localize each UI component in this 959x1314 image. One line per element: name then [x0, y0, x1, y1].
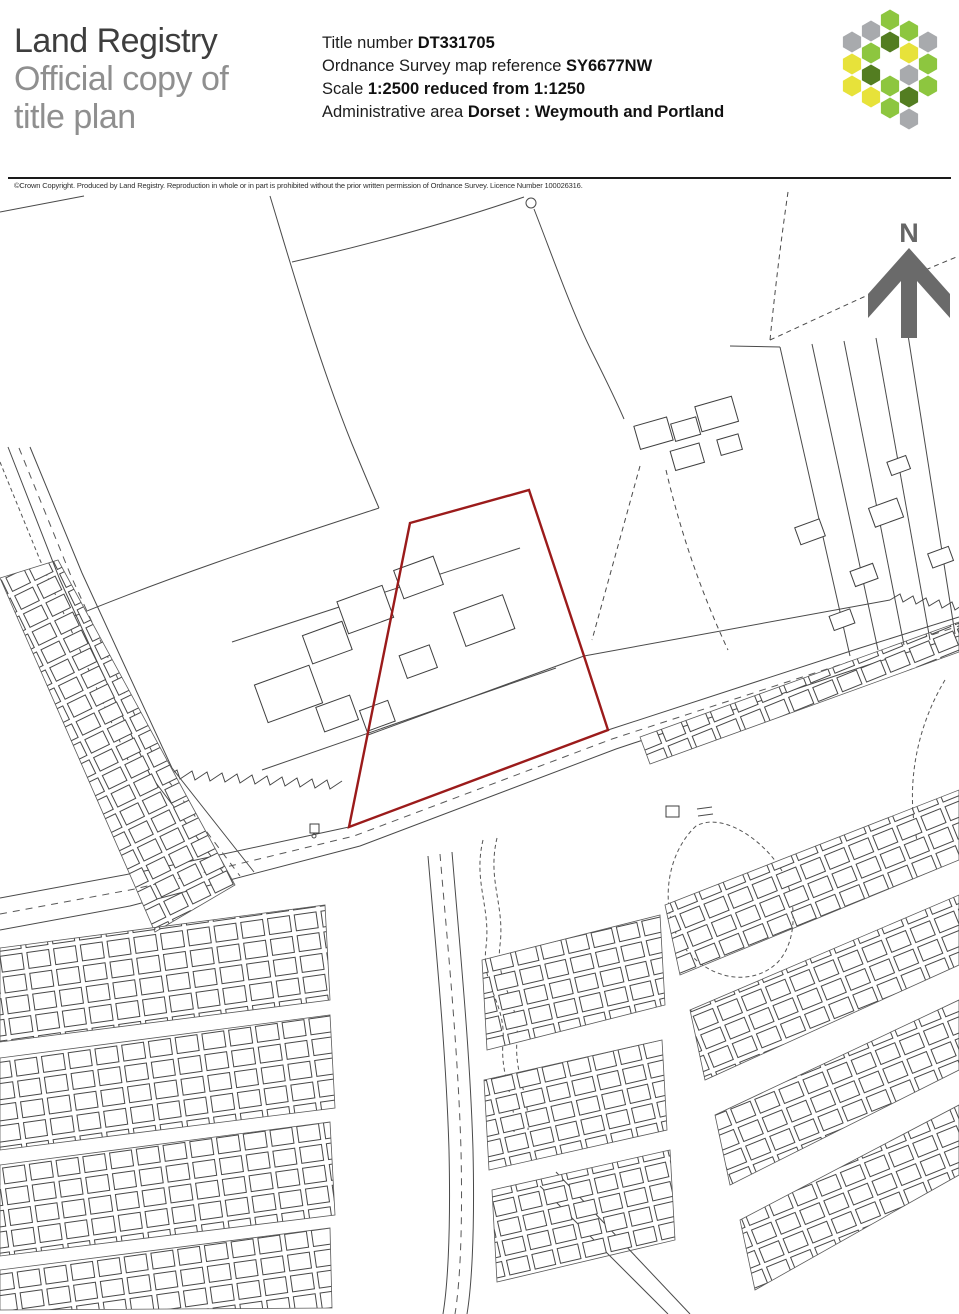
scale-label: Scale: [322, 80, 368, 98]
scale-row: Scale 1:2500 reduced from 1:1250: [322, 78, 760, 101]
header-divider: [8, 177, 951, 179]
admin-area-label: Administrative area: [322, 103, 468, 121]
brand-subtitle-line1: Official copy of: [14, 60, 228, 98]
brand-title: Land Registry: [14, 22, 228, 60]
brand-subtitle-line2: title plan: [14, 98, 228, 136]
farm-buildings: [633, 396, 746, 478]
land-registry-logo: [828, 2, 952, 152]
copyright-line: ©Crown Copyright. Produced by Land Regis…: [14, 181, 944, 190]
title-number-value: DT331705: [418, 34, 495, 52]
admin-area-value: Dorset : Weymouth and Portland: [468, 103, 724, 121]
north-label: N: [899, 218, 919, 248]
parcel-strips: [780, 335, 959, 656]
land-registry-brand: Land Registry Official copy of title pla…: [14, 22, 228, 136]
scale-value: 1:2500 reduced from 1:1250: [368, 80, 585, 98]
header: Land Registry Official copy of title pla…: [0, 0, 959, 178]
os-ref-value: SY6677NW: [566, 57, 652, 75]
map-canvas: N: [0, 0, 959, 1314]
os-ref-label: Ordnance Survey map reference: [322, 57, 566, 75]
title-plan-page: N Land Registry Official copy of title p…: [0, 0, 959, 1314]
os-ref-row: Ordnance Survey map reference SY6677NW: [322, 55, 760, 78]
title-number-row: Title number DT331705: [322, 32, 760, 55]
admin-area-row: Administrative area Dorset : Weymouth an…: [322, 101, 760, 124]
housing-bands: [0, 560, 959, 1310]
north-arrow: N: [868, 218, 950, 338]
title-number-label: Title number: [322, 34, 418, 52]
north-arrow-glyph: [868, 248, 950, 338]
map-symbols: [310, 806, 713, 838]
title-metadata: Title number DT331705 Ordnance Survey ma…: [322, 32, 760, 124]
title-boundary-polygon: [349, 490, 608, 827]
logo-hexagons: [843, 10, 937, 130]
large-buildings-block: [232, 538, 556, 770]
